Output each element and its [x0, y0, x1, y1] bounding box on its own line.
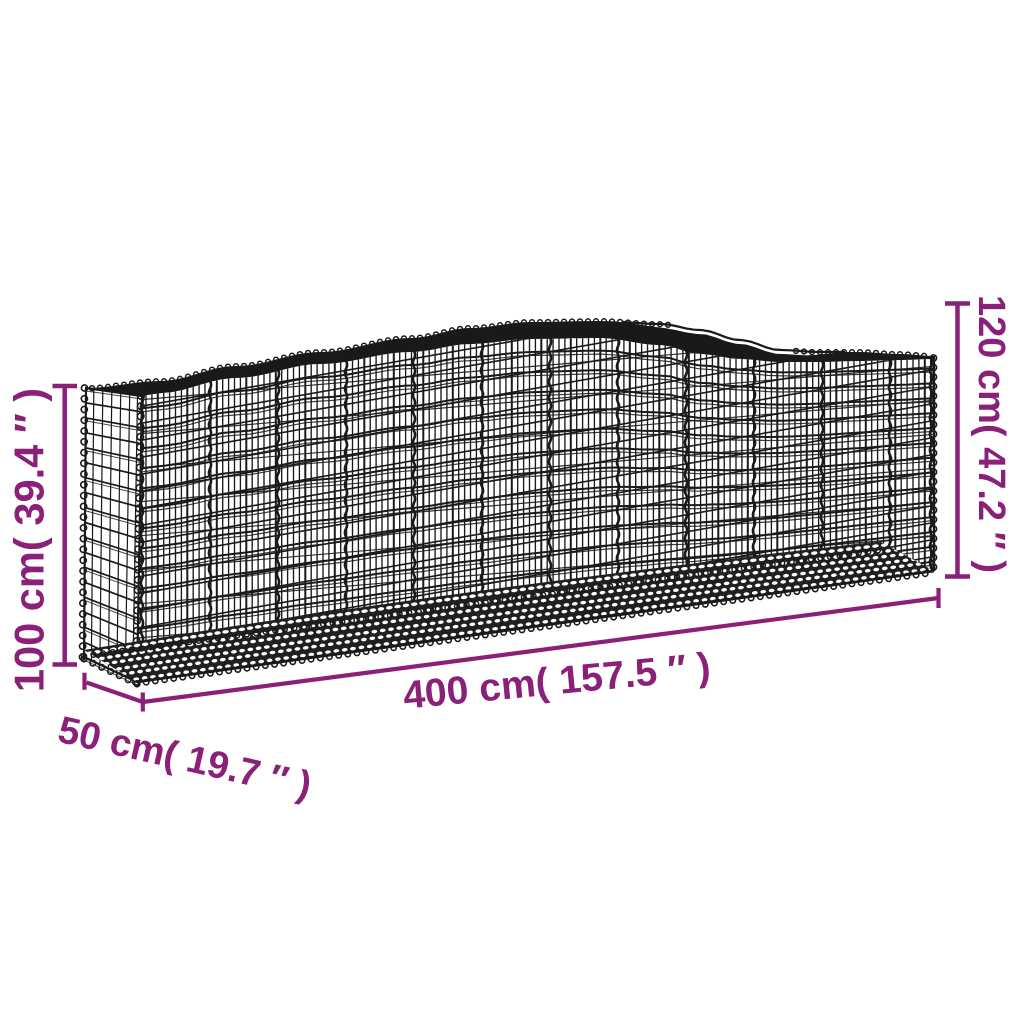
- svg-text:120 cm( 47.2 ″ ): 120 cm( 47.2 ″ ): [970, 295, 1012, 573]
- svg-text:100 cm( 39.4 ″ ): 100 cm( 39.4 ″ ): [6, 388, 53, 692]
